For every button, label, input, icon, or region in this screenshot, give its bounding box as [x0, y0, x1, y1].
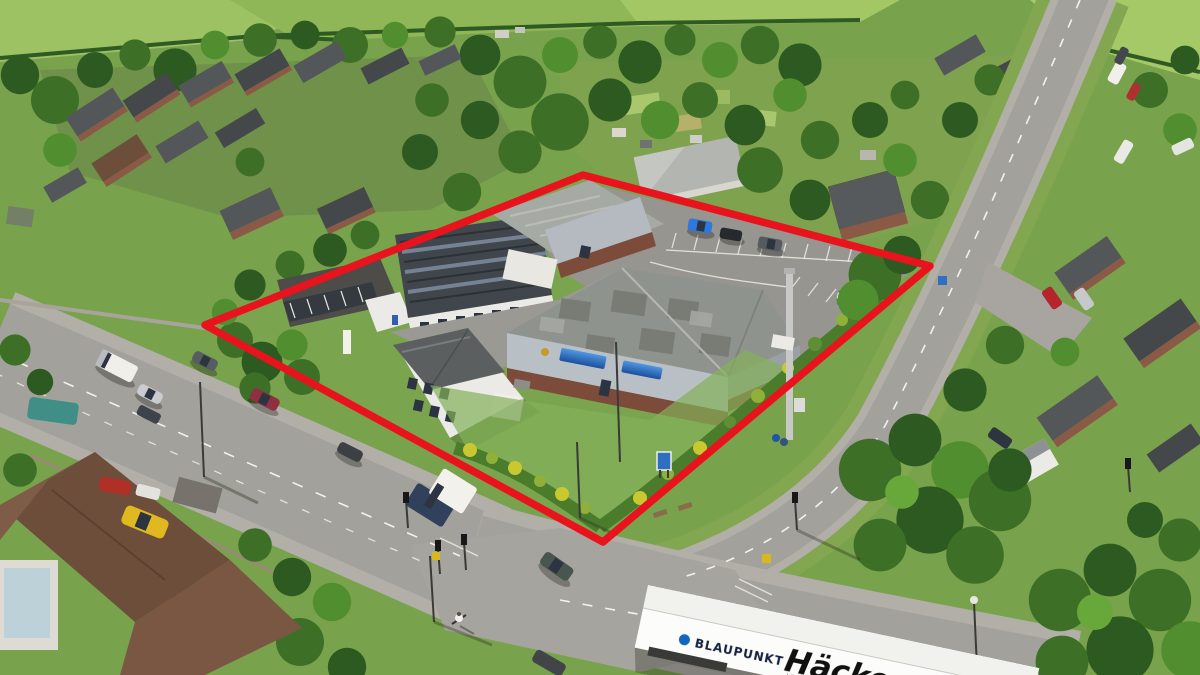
equipment-cabinet	[794, 398, 805, 412]
aerial-photo: BLAUPUNKT Häcker kitchen.german made	[0, 0, 1200, 675]
logo-roundel	[541, 348, 549, 356]
pedestrian-beacon	[762, 554, 771, 563]
blue-road-sign	[938, 276, 947, 285]
banner-sign	[343, 330, 351, 354]
aerial-photo-svg: BLAUPUNKT Häcker kitchen.german made	[0, 0, 1200, 675]
